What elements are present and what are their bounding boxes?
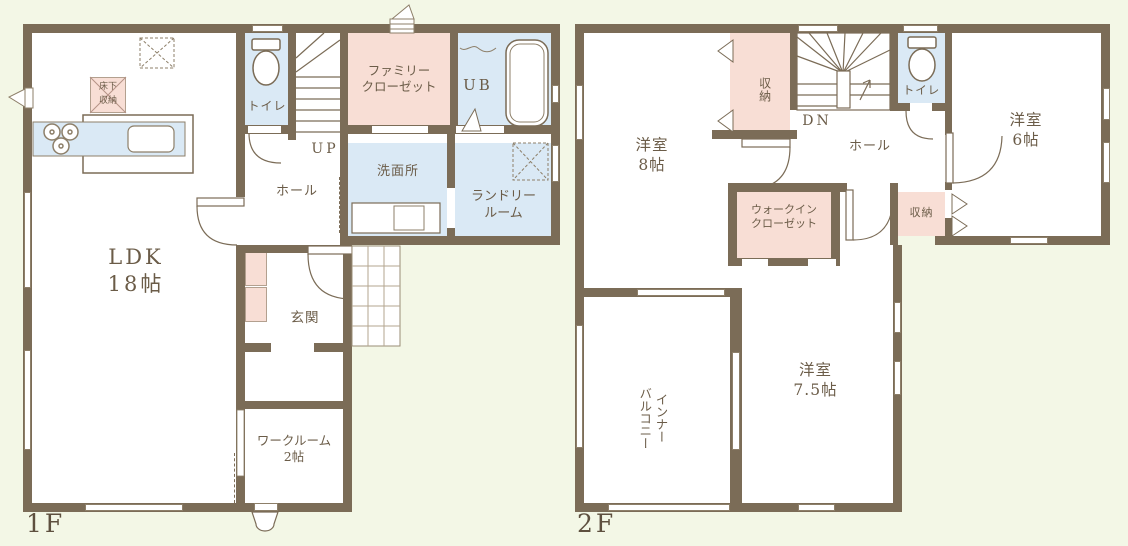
wall-segment: [23, 24, 560, 33]
room-label-unit-bath: UB: [455, 76, 501, 96]
wall-segment: [236, 245, 245, 352]
wall-segment: [551, 24, 560, 245]
room-label-ldk: LDK 18帖: [56, 244, 216, 299]
wall-segment: [245, 343, 271, 352]
wall-segment: [236, 33, 245, 133]
wall-segment: [728, 183, 847, 192]
wall-segment: [447, 228, 455, 236]
label-stairs-down: DN: [797, 112, 837, 130]
window: [24, 192, 31, 288]
window: [608, 504, 730, 511]
room-label-bedroom6: 洋室 6帖: [974, 110, 1078, 150]
wall-segment: [236, 352, 245, 503]
door-opening: [372, 126, 428, 133]
room-label-walk-in-closet: ウォークイン クローゼット: [728, 203, 840, 232]
door-opening: [456, 126, 504, 133]
wall-segment: [23, 503, 352, 512]
room-label-hall-2f: ホール: [824, 139, 916, 156]
wall-segment: [343, 245, 352, 512]
window: [576, 325, 583, 448]
room-label-family-closet: ファミリー クローゼット: [346, 63, 452, 96]
wall-segment: [243, 245, 345, 253]
window: [252, 25, 283, 32]
floor2-label: 2F: [577, 509, 616, 538]
entry-step: [252, 512, 278, 531]
door-opening: [808, 259, 836, 266]
wall-segment: [898, 103, 910, 111]
window: [24, 350, 31, 450]
wall-segment: [932, 103, 945, 111]
window: [732, 352, 740, 450]
room-label-bedroom75: 洋室 7.5帖: [758, 360, 873, 400]
room-label-laundry: ランドリー ルーム: [455, 189, 552, 223]
wall-segment: [447, 134, 455, 188]
room-label-toilet-2f: トイレ: [898, 83, 945, 98]
wall-segment: [575, 24, 1110, 33]
window: [1010, 237, 1048, 244]
wall-segment: [245, 401, 343, 409]
door-opening: [742, 259, 768, 266]
window: [894, 361, 901, 395]
room-label-toilet-1f: トイレ: [242, 99, 292, 115]
window: [894, 302, 901, 333]
workroom-door: [254, 503, 278, 511]
wall-segment: [340, 236, 560, 245]
porch-tiles: [352, 246, 400, 346]
wall-segment: [790, 33, 797, 110]
window: [85, 504, 183, 511]
wall-segment: [236, 134, 245, 197]
room-label-workroom: ワークルーム 2帖: [245, 433, 343, 466]
dashed-boundary: [234, 453, 235, 503]
wall-segment: [945, 33, 952, 135]
wall-segment: [712, 130, 797, 139]
wall-segment: [314, 343, 352, 352]
window: [798, 504, 835, 511]
window: [576, 85, 583, 140]
room-label-storage-left: 収納: [756, 62, 772, 118]
window: [903, 25, 938, 32]
floor-plan-canvas: { "colors":{ "background":"#f3f7e6", "wa…: [0, 0, 1128, 546]
room-label-storage-right: 収納: [898, 206, 945, 220]
window: [637, 289, 725, 296]
wall-segment: [1101, 24, 1110, 245]
room-label-bedroom8: 洋室 8帖: [597, 135, 707, 175]
room-washroom: [348, 143, 447, 236]
wall-segment: [890, 33, 898, 111]
room-toilet-1f: [245, 33, 288, 132]
window: [1103, 142, 1110, 183]
window: [552, 145, 559, 182]
room-label-underfloor-storage: 床下 収納: [88, 81, 128, 108]
room-label-entrance: 玄関: [268, 310, 342, 328]
room-label-inner-balcony: インナー バルコニー: [636, 357, 669, 479]
floor1-label: 1F: [26, 509, 65, 538]
door-opening: [447, 188, 455, 228]
wall-segment: [288, 33, 296, 140]
window: [552, 85, 559, 103]
window: [798, 25, 838, 32]
room-label-washroom: 洗面所: [348, 164, 448, 181]
wall-segment: [890, 183, 898, 245]
door-opening: [945, 190, 952, 218]
room-label-hall-1f: ホール: [252, 184, 342, 201]
label-stairs-up: UP: [303, 140, 347, 158]
shoe-cabinet-lower: [245, 287, 267, 322]
door-opening: [248, 126, 281, 133]
window: [1103, 88, 1110, 120]
shoe-cabinet-upper: [245, 250, 267, 286]
